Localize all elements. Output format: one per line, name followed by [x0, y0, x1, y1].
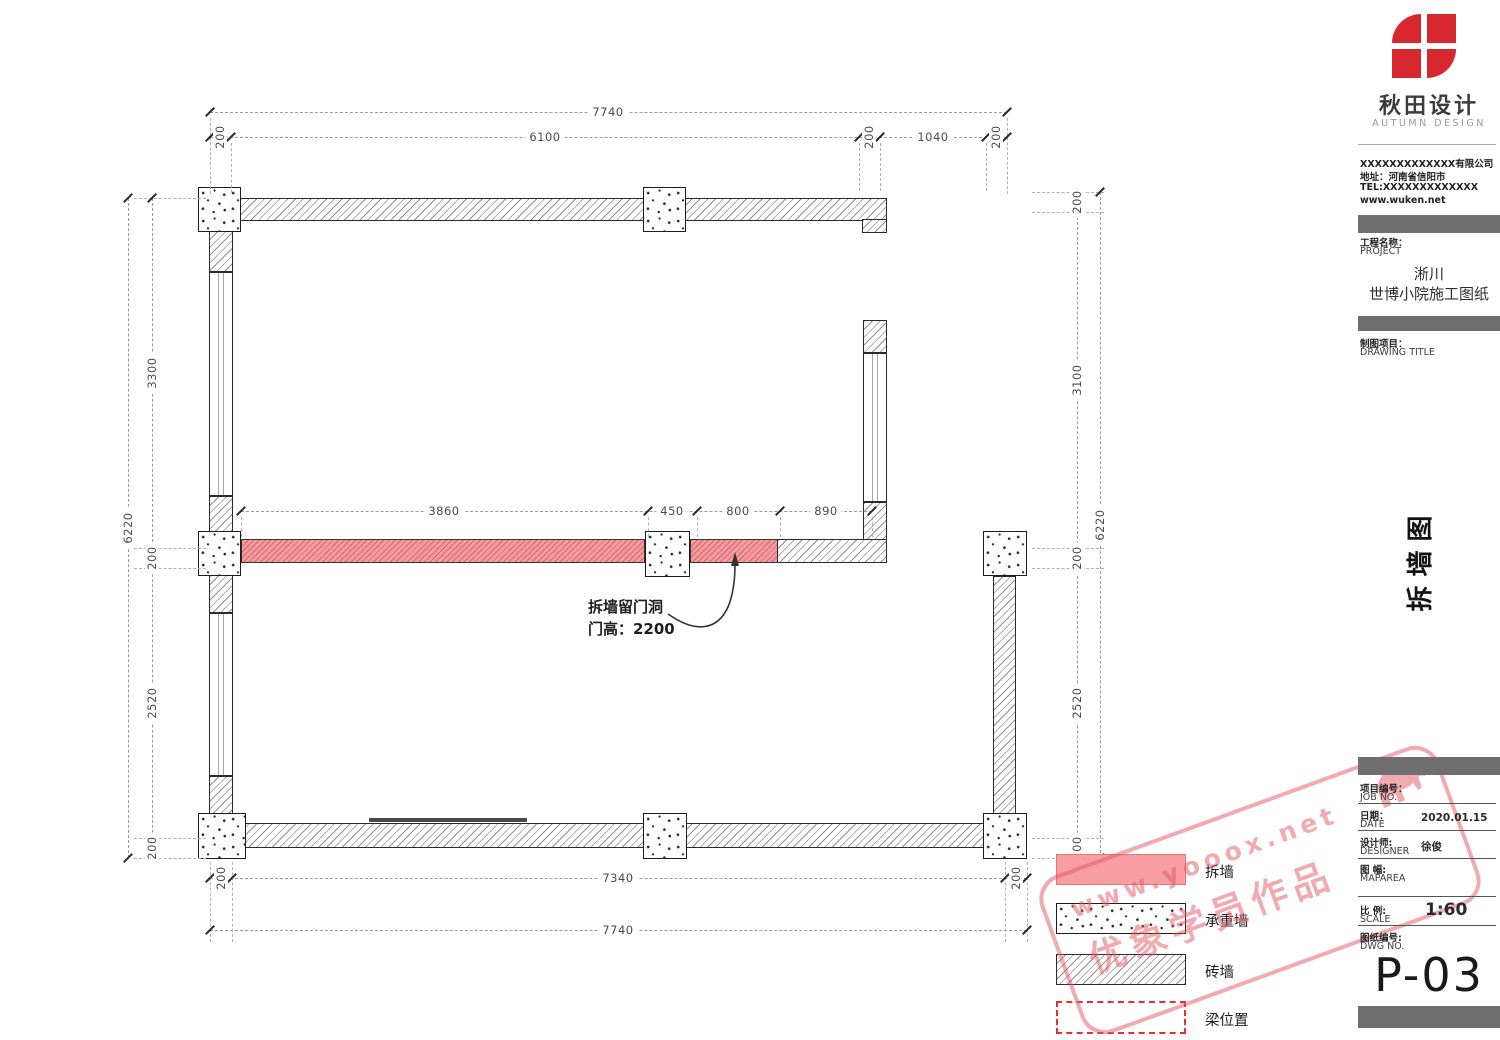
- project-name-line1: 淅川: [1358, 263, 1500, 284]
- dim-extension: [648, 517, 649, 537]
- field-designer-value: 徐俊: [1421, 839, 1442, 854]
- annotation-line1: 拆墙留门洞: [588, 596, 663, 617]
- dim-extension: [880, 143, 881, 191]
- dim-extension: [241, 517, 242, 537]
- dim-label: 200: [145, 542, 159, 573]
- dim-label: 200: [862, 121, 876, 152]
- drawing-title-label-en: DRAWING TITLE: [1360, 347, 1435, 358]
- wall-top: [216, 198, 887, 221]
- field-rule: [1358, 858, 1496, 859]
- dim-label: 800: [722, 504, 753, 518]
- dim-extension: [1032, 212, 1104, 213]
- dim-label: 3860: [424, 504, 463, 518]
- wall-demolition-a: [241, 539, 645, 563]
- wall-left-segment: [209, 230, 233, 272]
- dim-label: 450: [656, 504, 687, 518]
- dim-extension: [210, 118, 211, 194]
- dim-label: 200: [145, 832, 159, 863]
- dim-extension: [1032, 192, 1104, 193]
- window-right: [863, 353, 887, 502]
- dim-label: 6220: [1093, 505, 1107, 544]
- titleblock-bar: [1358, 316, 1500, 331]
- field-scale-en: SCALE: [1360, 914, 1390, 925]
- dim-extension: [872, 517, 873, 537]
- titleblock-bar: [1358, 1006, 1500, 1028]
- field-rule: [1358, 830, 1496, 831]
- dim-extension: [986, 143, 987, 191]
- logo-quadrant: [1392, 49, 1421, 78]
- field-maparea-en: MAPAREA: [1360, 873, 1405, 884]
- wall-demolition-b: [690, 539, 778, 563]
- divider: [1358, 144, 1496, 145]
- company-address: 地址：河南省信阳市: [1360, 169, 1446, 183]
- column: [645, 531, 690, 577]
- dim-label: 200: [1070, 542, 1084, 573]
- dim-line: [1077, 192, 1078, 858]
- dim-label: 7740: [598, 923, 637, 937]
- wall-right-lower: [993, 576, 1016, 823]
- dim-extension: [1032, 548, 1104, 549]
- dim-line: [210, 137, 1007, 138]
- logo-name-cn: 秋田设计: [1358, 88, 1500, 120]
- dim-label: 200: [989, 121, 1003, 152]
- dim-label: 3300: [145, 353, 159, 392]
- company-name: XXXXXXXXXXXXX有限公司: [1360, 156, 1493, 170]
- dim-extension: [859, 143, 860, 191]
- dim-label: 1040: [913, 130, 952, 144]
- dim-extension: [780, 517, 781, 537]
- field-date-en: DATE: [1360, 819, 1385, 830]
- dim-extension: [134, 198, 206, 199]
- field-rule: [1358, 803, 1496, 804]
- annotation-line2: 门高：2200: [588, 618, 675, 639]
- dim-label: 3100: [1070, 360, 1084, 399]
- field-scale-value: 1:60: [1425, 900, 1467, 920]
- column: [198, 813, 246, 859]
- column: [198, 187, 241, 232]
- dim-extension: [697, 517, 698, 537]
- wall-left-segment: [209, 575, 233, 613]
- column: [643, 187, 686, 232]
- dim-label: 7340: [598, 871, 637, 885]
- dim-label: 200: [1009, 862, 1023, 893]
- dim-label: 2520: [1070, 683, 1084, 722]
- logo-name-en: AUTUMN DESIGN: [1358, 118, 1500, 129]
- wall-left-segment: [209, 496, 233, 532]
- column: [983, 531, 1027, 576]
- dim-label: 200: [1070, 186, 1084, 217]
- drawing-title-vertical: 拆墙图: [1406, 504, 1436, 614]
- wall-middle-brick: [777, 539, 887, 563]
- column: [198, 531, 241, 576]
- company-web: www.wuken.net: [1360, 195, 1446, 206]
- titleblock-bar: [1358, 215, 1500, 233]
- logo-quadrant: [1392, 14, 1421, 43]
- dim-extension: [1007, 118, 1008, 194]
- dim-label: 200: [213, 121, 227, 152]
- company-tel: TEL:XXXXXXXXXXXXX: [1360, 182, 1478, 193]
- column: [643, 813, 687, 859]
- wall-right-upper-segment: [863, 320, 887, 353]
- window-left-lower: [209, 613, 233, 776]
- dim-extension: [1032, 568, 1104, 569]
- logo-quadrant: [1427, 14, 1456, 43]
- dim-line: [152, 198, 153, 858]
- field-rule: [1358, 896, 1496, 897]
- field-date-value: 2020.01.15: [1421, 812, 1487, 824]
- drawing-sheet: 7740 200 6100 200 1040 200 6220 3300 200…: [0, 0, 1500, 1040]
- titleblock-bar: [1358, 757, 1500, 775]
- field-rule: [1358, 925, 1496, 926]
- wall-top-notch: [862, 219, 887, 233]
- dim-label: 2520: [145, 683, 159, 722]
- dim-label: 7740: [588, 105, 627, 119]
- wall-bottom: [216, 823, 1016, 848]
- window-left-upper: [209, 272, 233, 496]
- wall-left-segment: [209, 776, 233, 816]
- logo-quadrant: [1427, 49, 1456, 78]
- dim-label: 200: [214, 862, 228, 893]
- dim-label: 6220: [121, 508, 135, 547]
- dim-extension: [1032, 838, 1104, 839]
- company-logo: [1392, 14, 1456, 78]
- dim-label: 6100: [525, 130, 564, 144]
- dwg-number: P-03: [1358, 948, 1500, 1002]
- legend-label-beam: 梁位置: [1205, 1009, 1249, 1030]
- project-label-en: PROJECT: [1360, 246, 1401, 257]
- beam-mark-line: [369, 818, 527, 822]
- field-designer-en: DESIGNER: [1360, 846, 1409, 857]
- dim-label: 890: [810, 504, 841, 518]
- field-job-en: JOB NO.: [1360, 792, 1397, 803]
- dim-extension: [231, 143, 232, 193]
- column: [983, 813, 1027, 859]
- project-name-line2: 世博小院施工图纸: [1358, 283, 1500, 304]
